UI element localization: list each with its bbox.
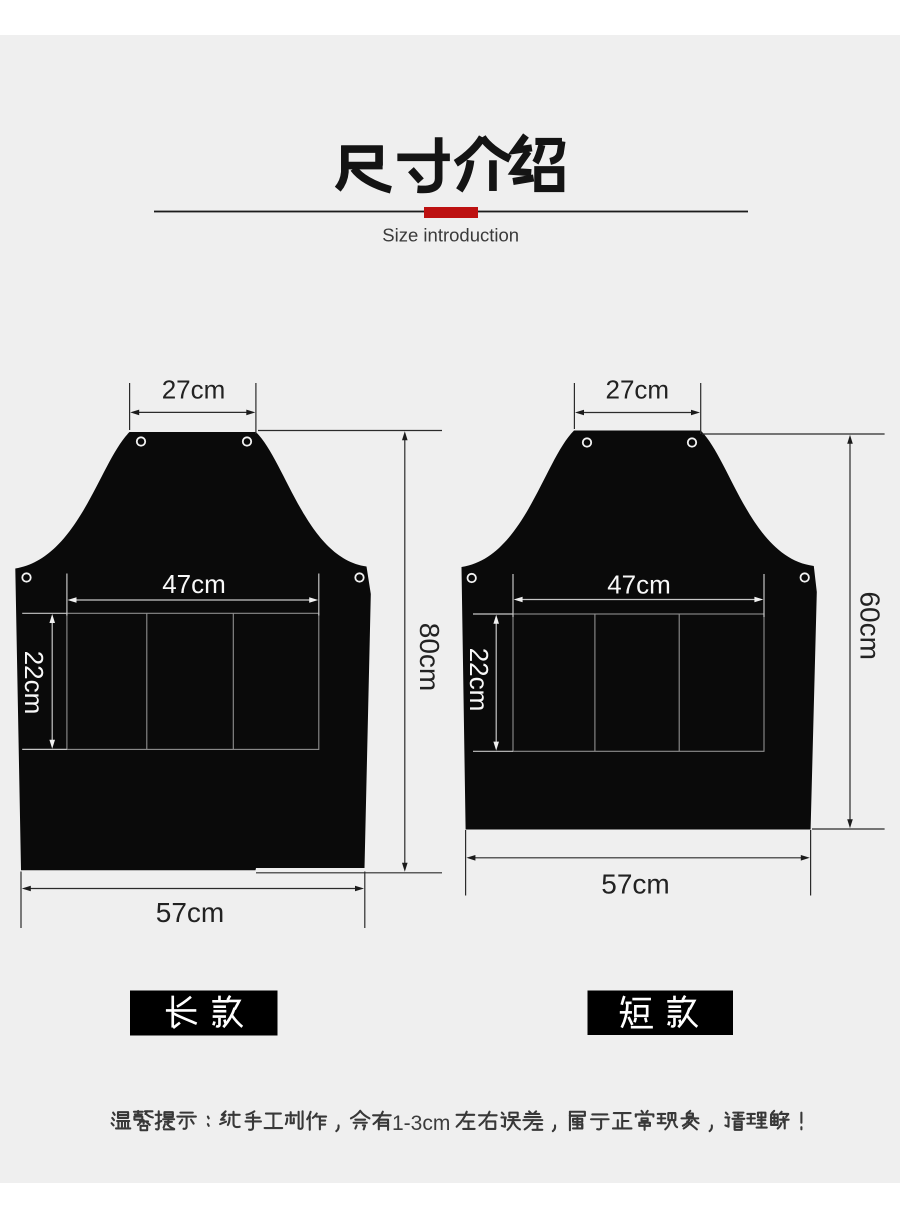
svg-text:1-3cm: 1-3cm <box>392 1112 450 1135</box>
svg-text:80cm: 80cm <box>414 623 445 691</box>
svg-text:47cm: 47cm <box>162 569 226 599</box>
svg-text:57cm: 57cm <box>156 897 224 928</box>
svg-text:22cm: 22cm <box>464 648 494 712</box>
svg-text:57cm: 57cm <box>601 869 669 900</box>
svg-text:22cm: 22cm <box>19 651 49 715</box>
svg-text:Size introduction: Size introduction <box>382 225 519 246</box>
svg-text:60cm: 60cm <box>855 591 886 659</box>
svg-text:27cm: 27cm <box>606 375 670 405</box>
svg-text:27cm: 27cm <box>162 375 226 405</box>
svg-text:47cm: 47cm <box>607 570 671 600</box>
